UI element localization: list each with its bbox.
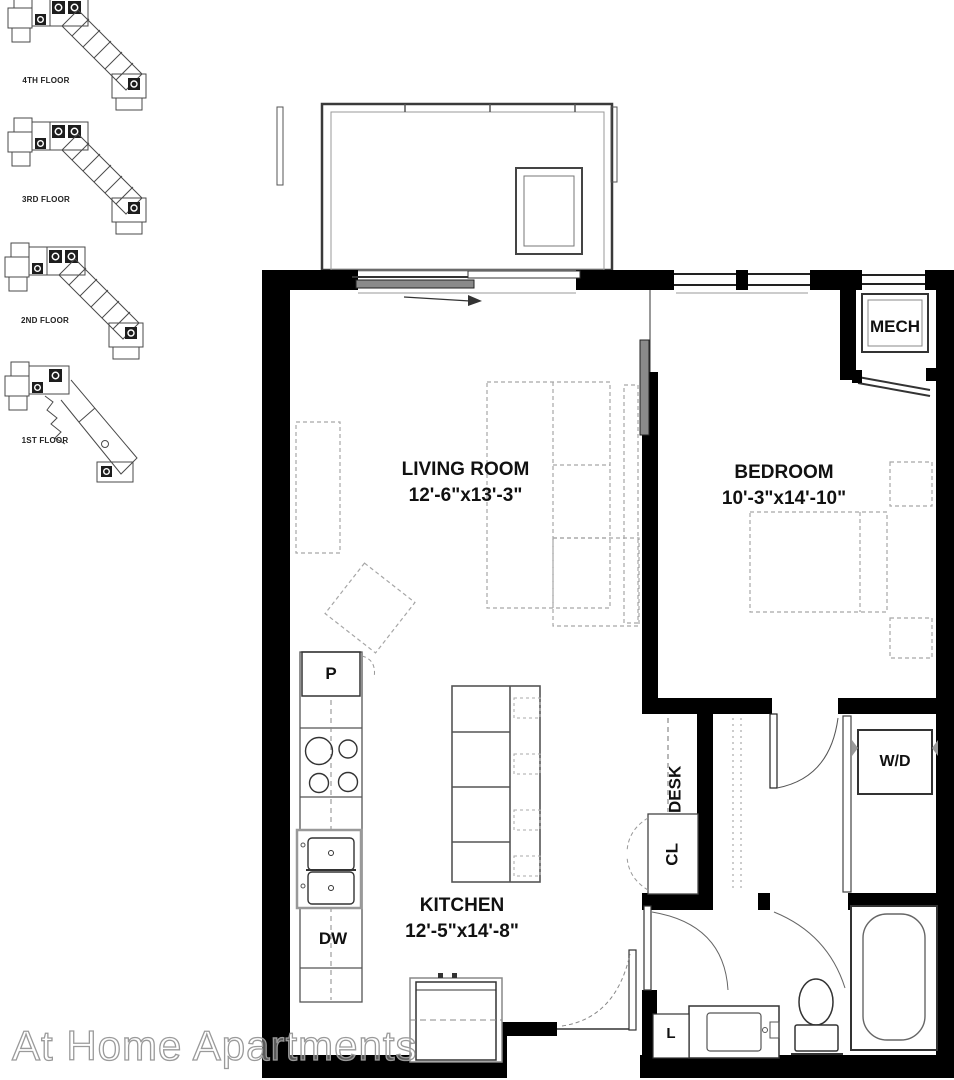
mech-room [852, 294, 936, 396]
living-room-dimensions: 12'-6"x13'-3" [388, 486, 543, 507]
living-room-furniture [296, 382, 639, 653]
floor-locator-2nd [5, 243, 143, 359]
living-room-label: LIVING ROOM [388, 460, 543, 481]
bathroom-doors [644, 906, 845, 990]
bedroom-dimensions: 10'-3"x14'-10" [710, 489, 858, 510]
hallway-dashed-lines [733, 718, 741, 890]
watermark-text: At Home Apartments [12, 1022, 418, 1070]
linen-label: L [653, 1026, 689, 1043]
kitchen-island [452, 686, 540, 882]
dishwasher-label: DW [308, 930, 358, 949]
mech-window [862, 275, 925, 284]
desk-label: DESK [667, 759, 686, 819]
refrigerator [410, 973, 502, 1062]
mech-label: MECH [864, 318, 926, 337]
floor-label-4th: 4TH FLOOR [11, 76, 81, 85]
washer-dryer-closet [843, 716, 938, 892]
bedroom-window [674, 270, 810, 293]
floor-locator-3rd [8, 118, 146, 234]
kitchen-sink [297, 830, 361, 908]
bathtub [851, 906, 937, 1050]
closet-label: CL [664, 834, 683, 874]
balcony [277, 104, 617, 270]
bathroom-vanity [689, 1006, 779, 1058]
floor-label-3rd: 3RD FLOOR [11, 195, 81, 204]
floor-plan-drawing [0, 0, 954, 1080]
entry-door [557, 950, 636, 1030]
washer-dryer-label: W/D [870, 753, 920, 771]
bedroom-label: BEDROOM [710, 463, 858, 484]
kitchen-label: KITCHEN [388, 896, 536, 917]
bedroom-sliding-door [640, 290, 650, 435]
floor-locator-4th [8, 0, 146, 110]
pantry-label: P [306, 665, 356, 684]
floor-label-2nd: 2ND FLOOR [10, 316, 80, 325]
patio-sliding-door [352, 271, 580, 306]
kitchen-counter [300, 652, 375, 1002]
floor-plan-page: 4TH FLOOR 3RD FLOOR 2ND FLOOR 1ST FLOOR … [0, 0, 954, 1080]
kitchen-dimensions: 12'-5"x14'-8" [388, 922, 536, 943]
toilet [791, 979, 843, 1054]
desk-nook [627, 718, 698, 894]
floor-label-1st: 1ST FLOOR [10, 436, 80, 445]
bedroom-door [770, 714, 838, 788]
floor-locator-1st [5, 362, 137, 482]
